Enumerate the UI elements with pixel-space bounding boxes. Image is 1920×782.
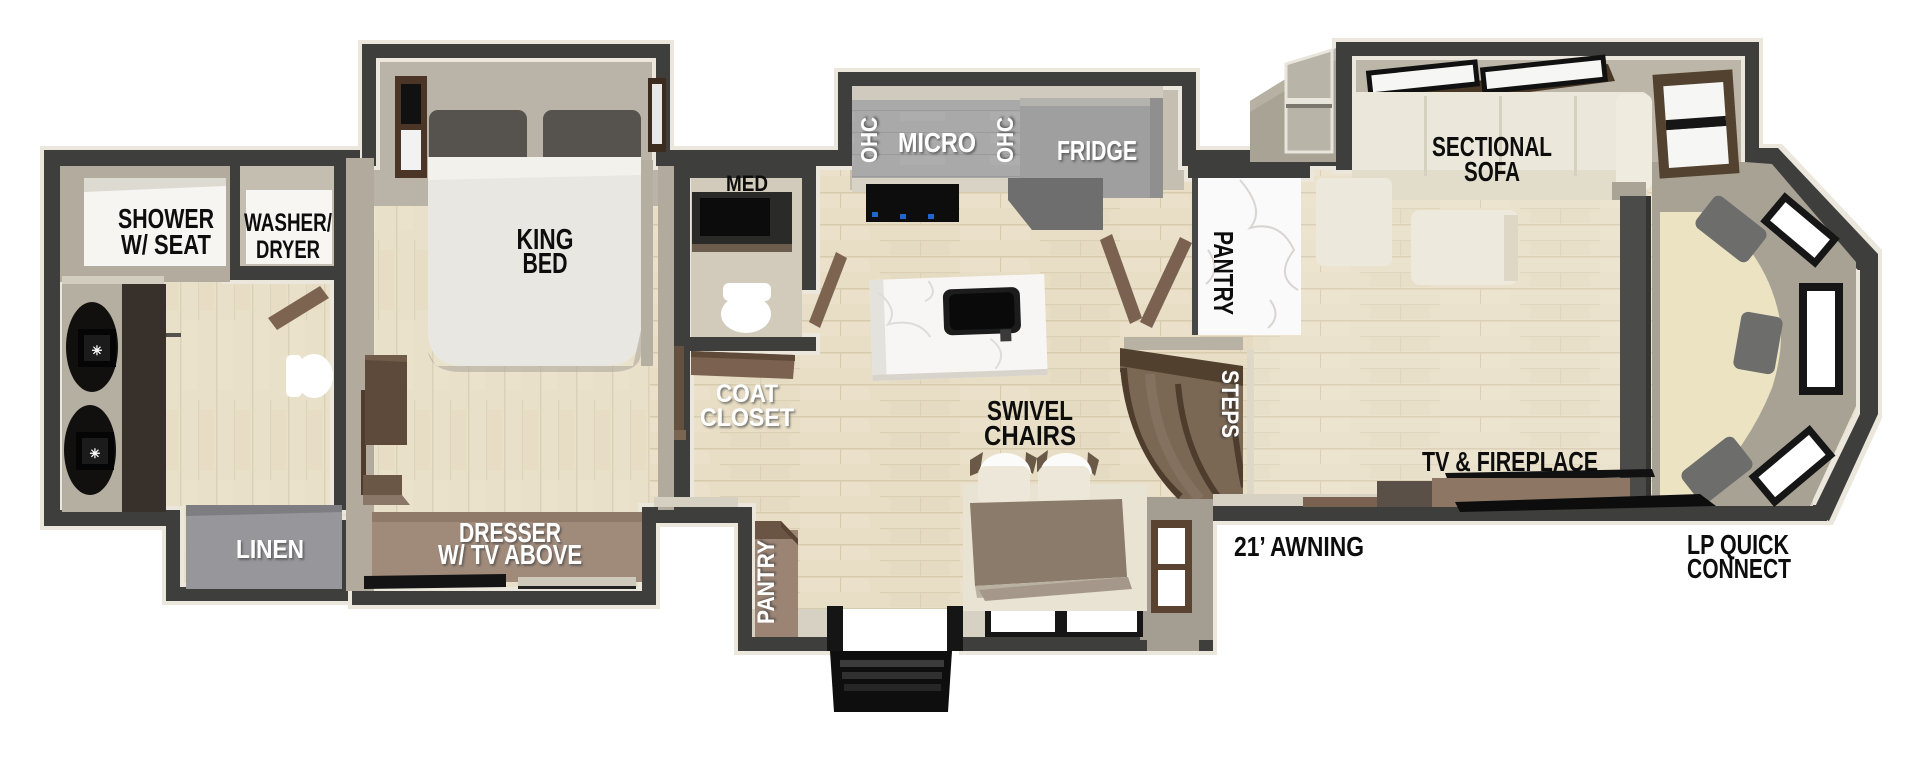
svg-text:MICRO: MICRO: [898, 127, 976, 158]
svg-text:OHC: OHC: [856, 117, 882, 163]
svg-text:W/ SEAT: W/ SEAT: [121, 229, 211, 260]
svg-text:W/ TV ABOVE: W/ TV ABOVE: [438, 539, 582, 570]
svg-text:FRIDGE: FRIDGE: [1057, 135, 1137, 166]
svg-text:WASHER/: WASHER/: [244, 209, 332, 237]
svg-text:CONNECT: CONNECT: [1687, 553, 1791, 584]
svg-text:TV & FIREPLACE: TV & FIREPLACE: [1422, 446, 1598, 477]
svg-text:OHC: OHC: [992, 117, 1018, 163]
svg-text:PANTRY: PANTRY: [1208, 231, 1239, 315]
svg-text:MED: MED: [726, 171, 768, 196]
svg-text:DRYER: DRYER: [256, 236, 320, 264]
svg-text:CLOSET: CLOSET: [700, 404, 794, 432]
svg-text:PANTRY: PANTRY: [753, 540, 780, 624]
svg-text:BED: BED: [523, 248, 568, 280]
svg-text:21’ AWNING: 21’ AWNING: [1234, 531, 1364, 562]
svg-text:✳: ✳: [92, 343, 103, 358]
svg-text:SOFA: SOFA: [1464, 156, 1520, 187]
svg-text:CHAIRS: CHAIRS: [984, 420, 1076, 451]
svg-text:STEPS: STEPS: [1216, 370, 1243, 438]
svg-text:LINEN: LINEN: [236, 534, 304, 564]
svg-text:✳: ✳: [90, 446, 101, 461]
